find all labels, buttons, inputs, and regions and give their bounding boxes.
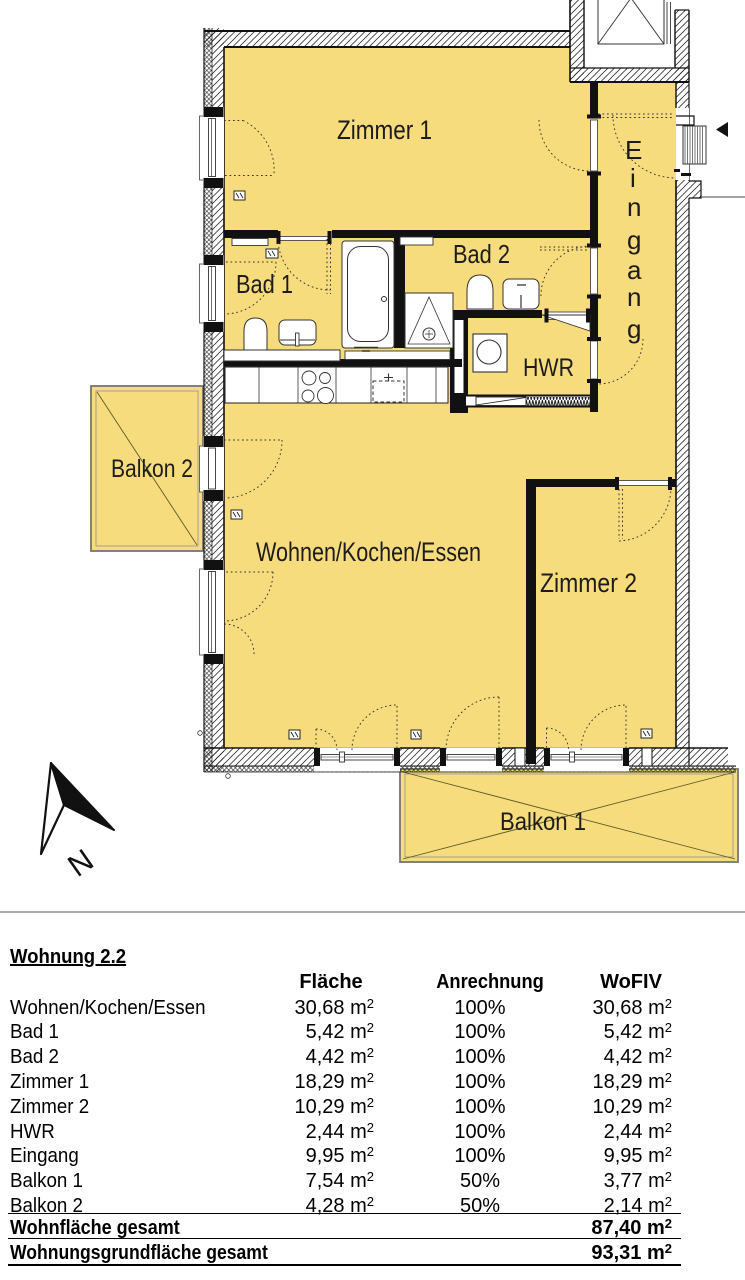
svg-text:Balkon 2: Balkon 2 — [111, 455, 193, 483]
svg-text:n: n — [627, 282, 641, 312]
svg-text:Wohnen/Kochen/Essen: Wohnen/Kochen/Essen — [256, 537, 481, 567]
svg-text:g: g — [627, 314, 641, 344]
svg-text:n: n — [627, 192, 641, 222]
svg-text:E: E — [625, 135, 642, 165]
svg-text:g: g — [627, 225, 641, 255]
svg-text:Zimmer 2: Zimmer 2 — [540, 568, 637, 598]
svg-text:Bad 1: Bad 1 — [236, 269, 293, 299]
svg-text:i: i — [630, 163, 636, 193]
svg-text:a: a — [627, 255, 642, 285]
svg-text:Bad 2: Bad 2 — [453, 239, 510, 269]
svg-text:Balkon 1: Balkon 1 — [500, 808, 586, 836]
svg-text:Zimmer 1: Zimmer 1 — [337, 115, 432, 145]
svg-text:N: N — [61, 842, 99, 884]
svg-text:HWR: HWR — [523, 354, 574, 382]
